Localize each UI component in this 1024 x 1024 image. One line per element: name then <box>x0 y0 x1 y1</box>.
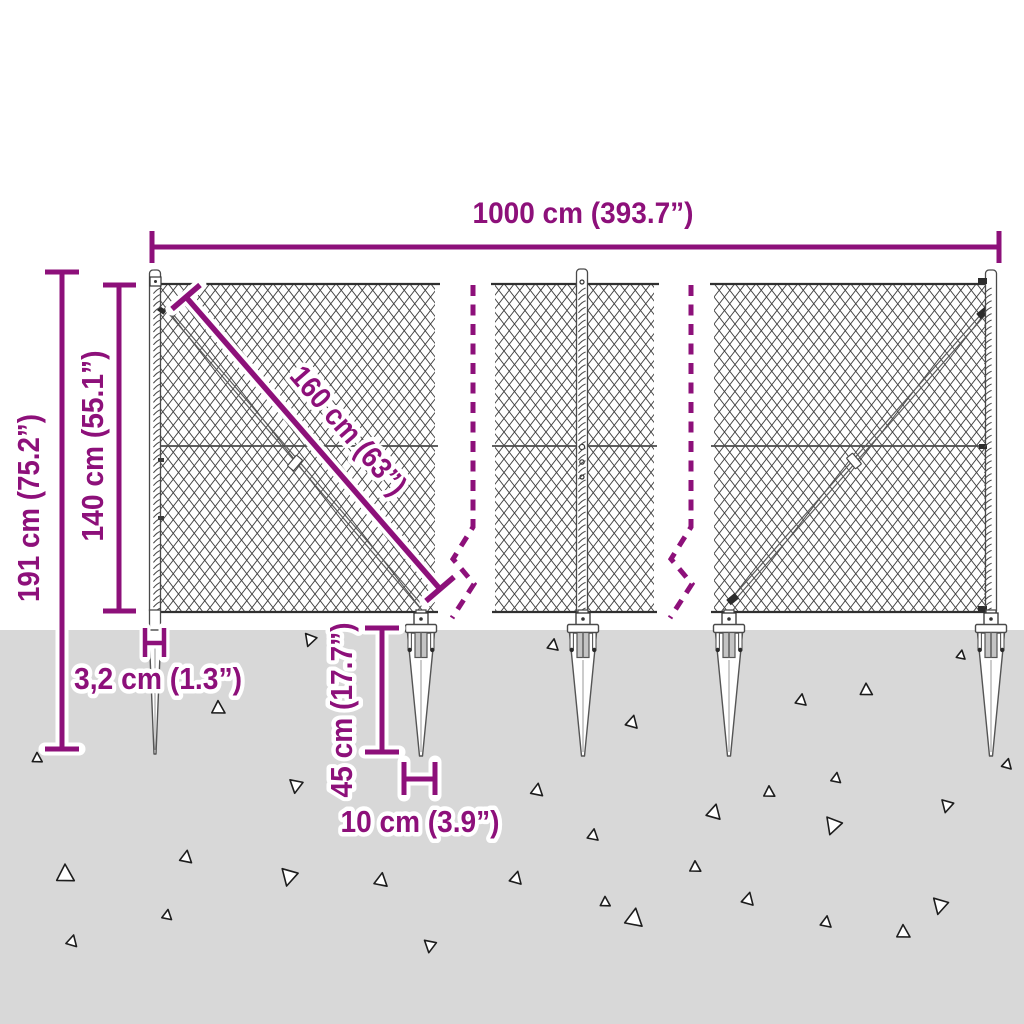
svg-text:1000 cm (393.7”): 1000 cm (393.7”) <box>473 197 694 230</box>
svg-text:140 cm (55.1”): 140 cm (55.1”) <box>75 351 110 542</box>
svg-text:3,2 cm (1.3”): 3,2 cm (1.3”) <box>74 661 242 696</box>
svg-text:45 cm (17.7”): 45 cm (17.7”) <box>324 623 359 798</box>
svg-text:10 cm (3.9”): 10 cm (3.9”) <box>341 804 500 839</box>
svg-text:191 cm (75.2”): 191 cm (75.2”) <box>11 414 46 602</box>
